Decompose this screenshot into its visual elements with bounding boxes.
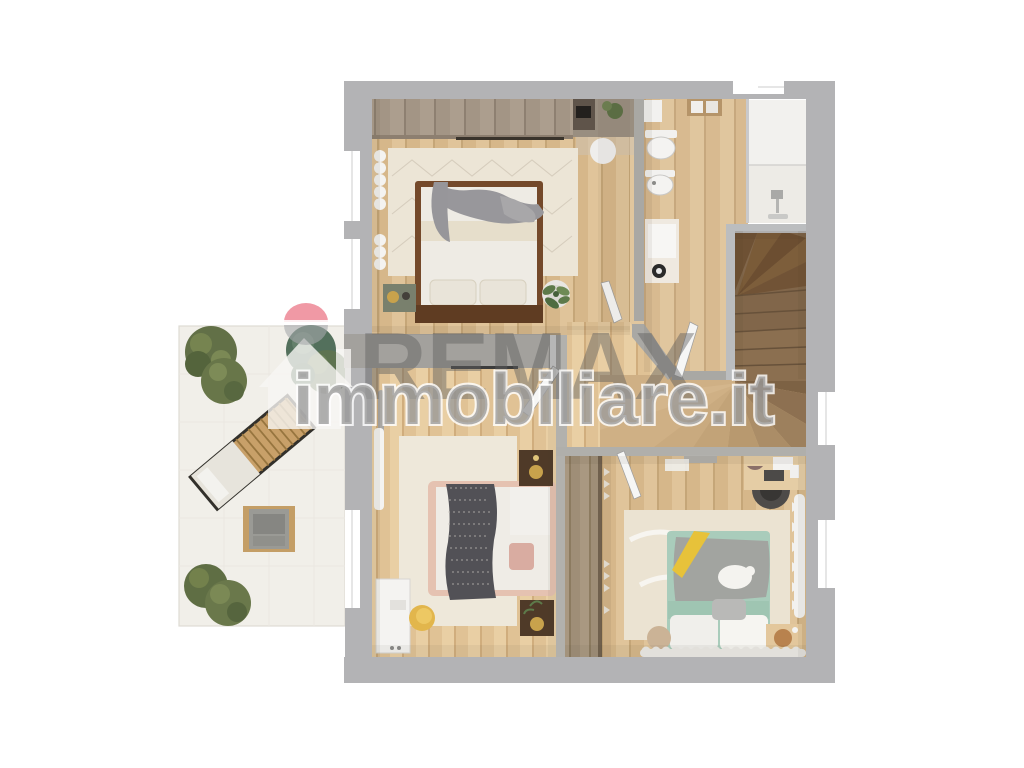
svg-text:immobiliare.it: immobiliare.it [293,360,774,440]
